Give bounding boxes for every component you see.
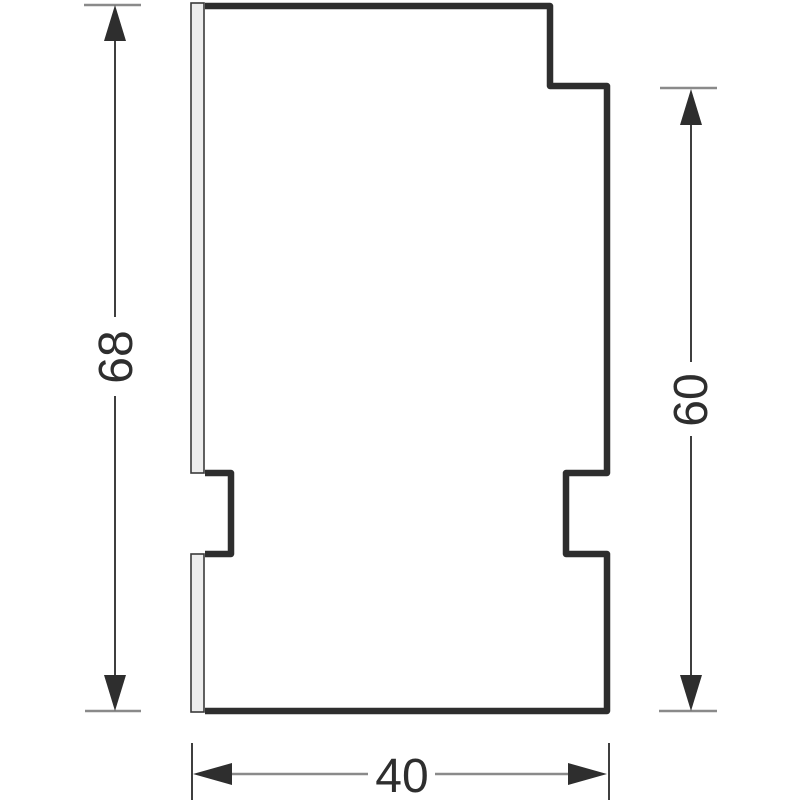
flange-strip-upper	[191, 3, 204, 473]
flange-strip-lower	[191, 554, 204, 712]
dimension-overall-height: 68	[84, 5, 143, 711]
dim-68-arrow-down-icon	[104, 675, 126, 711]
dimension-right-height: 60	[659, 88, 718, 711]
dim-40-arrow-left-icon	[193, 763, 232, 785]
dimension-width: 40	[192, 743, 609, 800]
dim-60-arrow-up-icon	[680, 89, 702, 125]
dim-40-value: 40	[375, 750, 428, 800]
technical-drawing-page: 68 60 40	[0, 0, 800, 800]
body-outline	[205, 6, 607, 711]
dim-60-arrow-down-icon	[680, 675, 702, 711]
left-clip-notch-outline	[205, 473, 231, 554]
dim-68-value: 68	[90, 330, 143, 383]
mounting-flange	[191, 3, 204, 712]
technical-drawing-canvas: 68 60 40	[0, 0, 800, 800]
dim-68-arrow-up-icon	[104, 5, 126, 41]
dim-40-arrow-right-icon	[568, 763, 607, 785]
dim-60-value: 60	[665, 373, 718, 426]
